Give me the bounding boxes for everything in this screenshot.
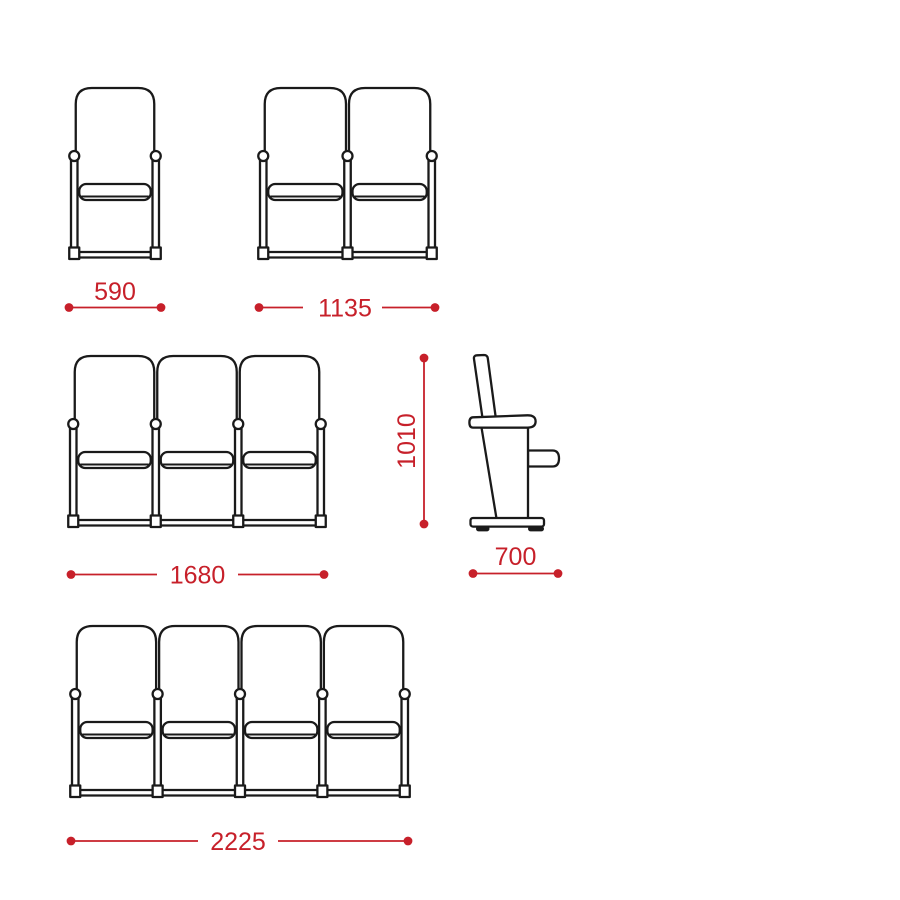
side-foot-rear	[529, 527, 544, 531]
seat-backrest	[240, 356, 320, 458]
armrest-joint	[343, 151, 353, 161]
seat-post	[402, 696, 409, 793]
dimension-endpoint-dot	[65, 303, 74, 312]
seat-cushion	[245, 722, 317, 738]
dimension-endpoint-dot	[255, 303, 264, 312]
seat-backrest	[75, 356, 155, 458]
seat-post	[153, 426, 160, 523]
dimension-overall-height: 1010	[393, 354, 428, 529]
seat-cushion	[80, 722, 152, 738]
seat-foot	[427, 248, 437, 260]
seat-post	[319, 696, 326, 793]
seat-post	[154, 696, 161, 793]
seat-foot	[316, 516, 326, 528]
seat-foot	[153, 786, 163, 798]
dimension-endpoint-dot	[67, 837, 76, 846]
armrest-joint	[317, 689, 327, 699]
side-base	[471, 518, 545, 527]
seat-foot	[70, 786, 80, 798]
dimension-endpoint-dot	[431, 303, 440, 312]
dimension-label: 590	[94, 278, 136, 306]
armrest-joint	[316, 419, 326, 429]
seat-foot	[68, 516, 78, 528]
bottom-rail	[71, 520, 324, 526]
seat-backrest	[349, 88, 430, 190]
front-view-2-seats	[258, 88, 437, 259]
armrest-joint	[153, 689, 163, 699]
armrest-joint	[233, 419, 243, 429]
seat-cushion	[78, 452, 151, 468]
armrest-joint	[70, 689, 80, 699]
dimension-endpoint-dot	[157, 303, 166, 312]
seat-post	[235, 426, 242, 523]
dimension-endpoint-dot	[469, 569, 478, 578]
side-view	[469, 355, 559, 531]
diagram-svg: 590 1135 1680 1010	[0, 0, 900, 900]
seat-cushion	[268, 184, 342, 200]
seat-post	[260, 158, 267, 255]
side-seat-tab	[528, 451, 559, 467]
front-view-4-seats	[70, 626, 410, 797]
front-view-1-seat	[69, 88, 161, 259]
dimension-label: 1135	[318, 295, 372, 323]
dimension-double-row-width: 1135	[255, 295, 440, 323]
armrest-joint	[400, 689, 410, 699]
dimension-label: 1010	[393, 413, 421, 469]
armrest-joint	[258, 151, 268, 161]
armrest-joint	[235, 689, 245, 699]
dimension-label: 2225	[210, 828, 266, 856]
seat-post	[153, 158, 160, 255]
bottom-rail	[72, 252, 159, 258]
seat-foot	[317, 786, 327, 798]
side-foot-front	[477, 527, 490, 531]
front-view-3-seats	[68, 356, 326, 527]
seat-backrest	[324, 626, 403, 728]
dimension-endpoint-dot	[67, 570, 76, 579]
seat-post	[71, 158, 78, 255]
seat-post	[72, 696, 79, 793]
seat-post	[237, 696, 244, 793]
seat-backrest	[242, 626, 321, 728]
seat-post	[70, 426, 77, 523]
seat-post	[429, 158, 436, 255]
seat-foot	[343, 248, 353, 260]
side-body	[482, 428, 529, 519]
seat-cushion	[163, 722, 235, 738]
dimension-endpoint-dot	[420, 354, 429, 363]
seat-cushion	[79, 184, 151, 200]
dimension-endpoint-dot	[320, 570, 329, 579]
seat-cushion	[243, 452, 316, 468]
armrest-joint	[68, 419, 78, 429]
seat-post	[344, 158, 351, 255]
seat-foot	[258, 248, 268, 260]
side-armrest	[469, 415, 535, 427]
seat-backrest	[265, 88, 346, 190]
seating-dimension-drawing: 590 1135 1680 1010	[0, 0, 900, 900]
seat-backrest	[159, 626, 238, 728]
dimension-quad-row-width: 2225	[67, 828, 413, 856]
seat-cushion	[353, 184, 427, 200]
seat-backrest	[77, 626, 156, 728]
seat-foot	[69, 248, 79, 260]
seat-foot	[235, 786, 245, 798]
dimension-label: 700	[495, 543, 537, 571]
seat-foot	[151, 516, 161, 528]
seat-post	[318, 426, 325, 523]
seat-foot	[400, 786, 410, 798]
seat-backrest	[157, 356, 237, 458]
seat-foot	[233, 516, 243, 528]
armrest-joint	[151, 151, 161, 161]
armrest-joint	[151, 419, 161, 429]
dimension-endpoint-dot	[404, 837, 413, 846]
dimension-triple-row-width: 1680	[67, 562, 329, 590]
seat-foot	[151, 248, 161, 260]
dimension-endpoint-dot	[420, 520, 429, 529]
dimension-seat-depth: 700	[469, 543, 563, 578]
dimension-label: 1680	[170, 562, 226, 590]
seat-cushion	[161, 452, 234, 468]
seat-backrest	[76, 88, 155, 190]
armrest-joint	[69, 151, 79, 161]
side-backrest	[474, 355, 496, 418]
dimension-single-row-width: 590	[65, 278, 166, 312]
seat-cushion	[327, 722, 399, 738]
armrest-joint	[427, 151, 437, 161]
dimension-endpoint-dot	[554, 569, 563, 578]
